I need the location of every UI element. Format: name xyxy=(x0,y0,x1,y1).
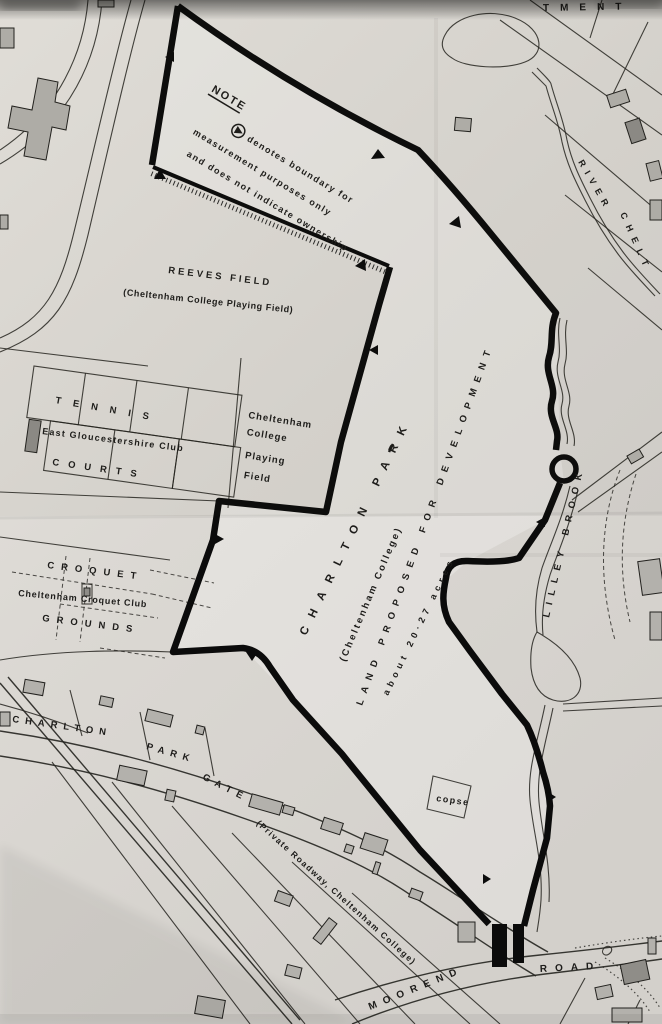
map-canvas: TMENT NOTE denotes boundary for measurem… xyxy=(0,0,662,1024)
boundary-bar xyxy=(513,924,524,963)
boundary-bar xyxy=(492,924,507,967)
map-photo: TMENT NOTE denotes boundary for measurem… xyxy=(0,0,662,1024)
